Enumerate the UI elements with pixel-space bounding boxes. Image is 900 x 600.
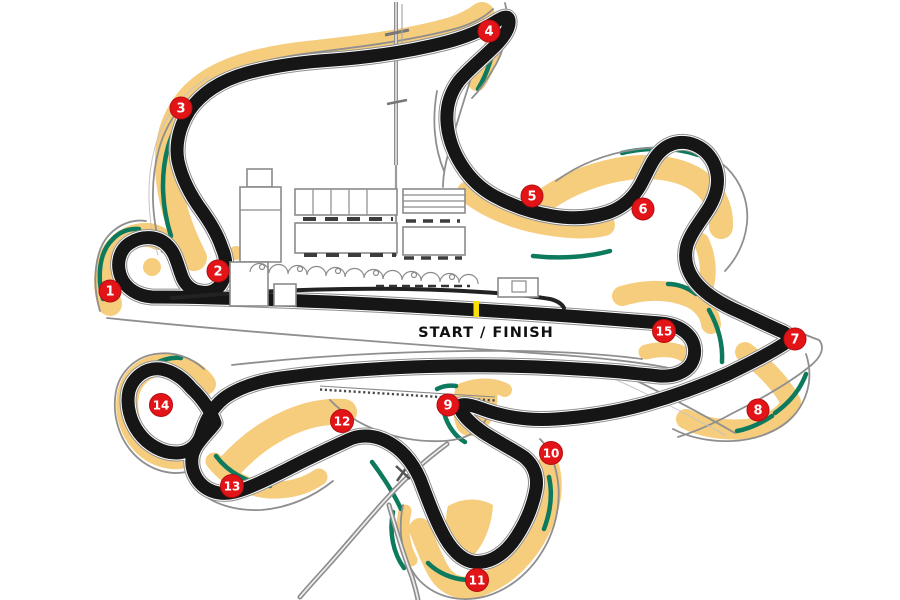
track-map: START / FINISH 1 2 3 4 5 6 7 (0, 0, 900, 600)
corner-marker-11: 11 (466, 569, 489, 592)
corner-number: 4 (484, 25, 493, 40)
start-finish-line (474, 301, 480, 317)
corner-marker-8: 8 (747, 399, 769, 421)
corner-number: 10 (543, 447, 560, 461)
corner-number: 6 (638, 203, 647, 218)
corner-number: 15 (656, 325, 673, 339)
corner-marker-7: 7 (784, 328, 806, 350)
corner-marker-6: 6 (632, 198, 654, 220)
corner-marker-10: 10 (540, 442, 563, 465)
corner-number: 13 (224, 480, 241, 494)
corner-number: 7 (790, 333, 799, 348)
corner-marker-13: 13 (221, 475, 244, 498)
corner-marker-12: 12 (331, 410, 354, 433)
corner-number: 5 (527, 190, 536, 205)
corner-marker-2: 2 (207, 260, 229, 282)
corner-marker-4: 4 (478, 20, 500, 42)
corner-number: 3 (176, 102, 185, 117)
corner-marker-3: 3 (170, 97, 192, 119)
corner-marker-15: 15 (653, 320, 676, 343)
corner-number: 11 (469, 574, 486, 588)
corner-number: 12 (334, 415, 351, 429)
start-finish-label: START / FINISH (418, 325, 554, 341)
corner-number: 2 (213, 265, 222, 280)
corner-marker-9: 9 (437, 394, 459, 416)
corner-marker-1: 1 (99, 280, 121, 302)
corner-marker-14: 14 (150, 394, 173, 417)
circuit-svg: START / FINISH 1 2 3 4 5 6 7 (0, 0, 900, 600)
corner-number: 1 (105, 285, 114, 300)
corner-number: 14 (153, 399, 170, 413)
corner-number: 9 (443, 399, 452, 414)
corner-marker-5: 5 (521, 185, 543, 207)
corner-number: 8 (753, 404, 762, 419)
